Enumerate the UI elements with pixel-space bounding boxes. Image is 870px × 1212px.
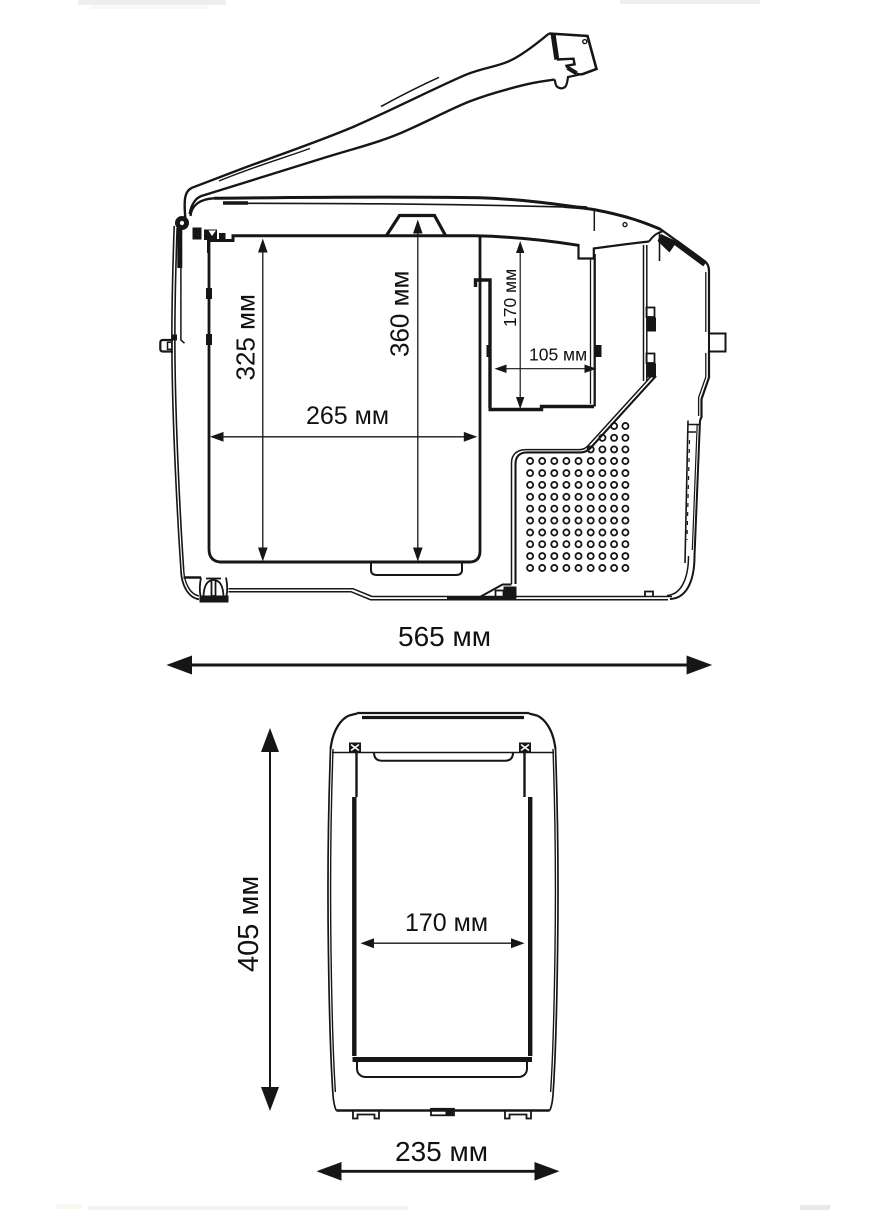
svg-text:565 мм: 565 мм: [398, 621, 491, 652]
svg-text:325 мм: 325 мм: [231, 294, 261, 380]
svg-text:105 мм: 105 мм: [529, 345, 587, 365]
svg-text:360 мм: 360 мм: [385, 271, 415, 357]
svg-text:405 мм: 405 мм: [233, 876, 265, 972]
svg-text:235 мм: 235 мм: [395, 1136, 488, 1167]
svg-text:265 мм: 265 мм: [306, 402, 389, 430]
svg-text:170 мм: 170 мм: [405, 909, 488, 937]
svg-text:170 мм: 170 мм: [500, 269, 520, 327]
